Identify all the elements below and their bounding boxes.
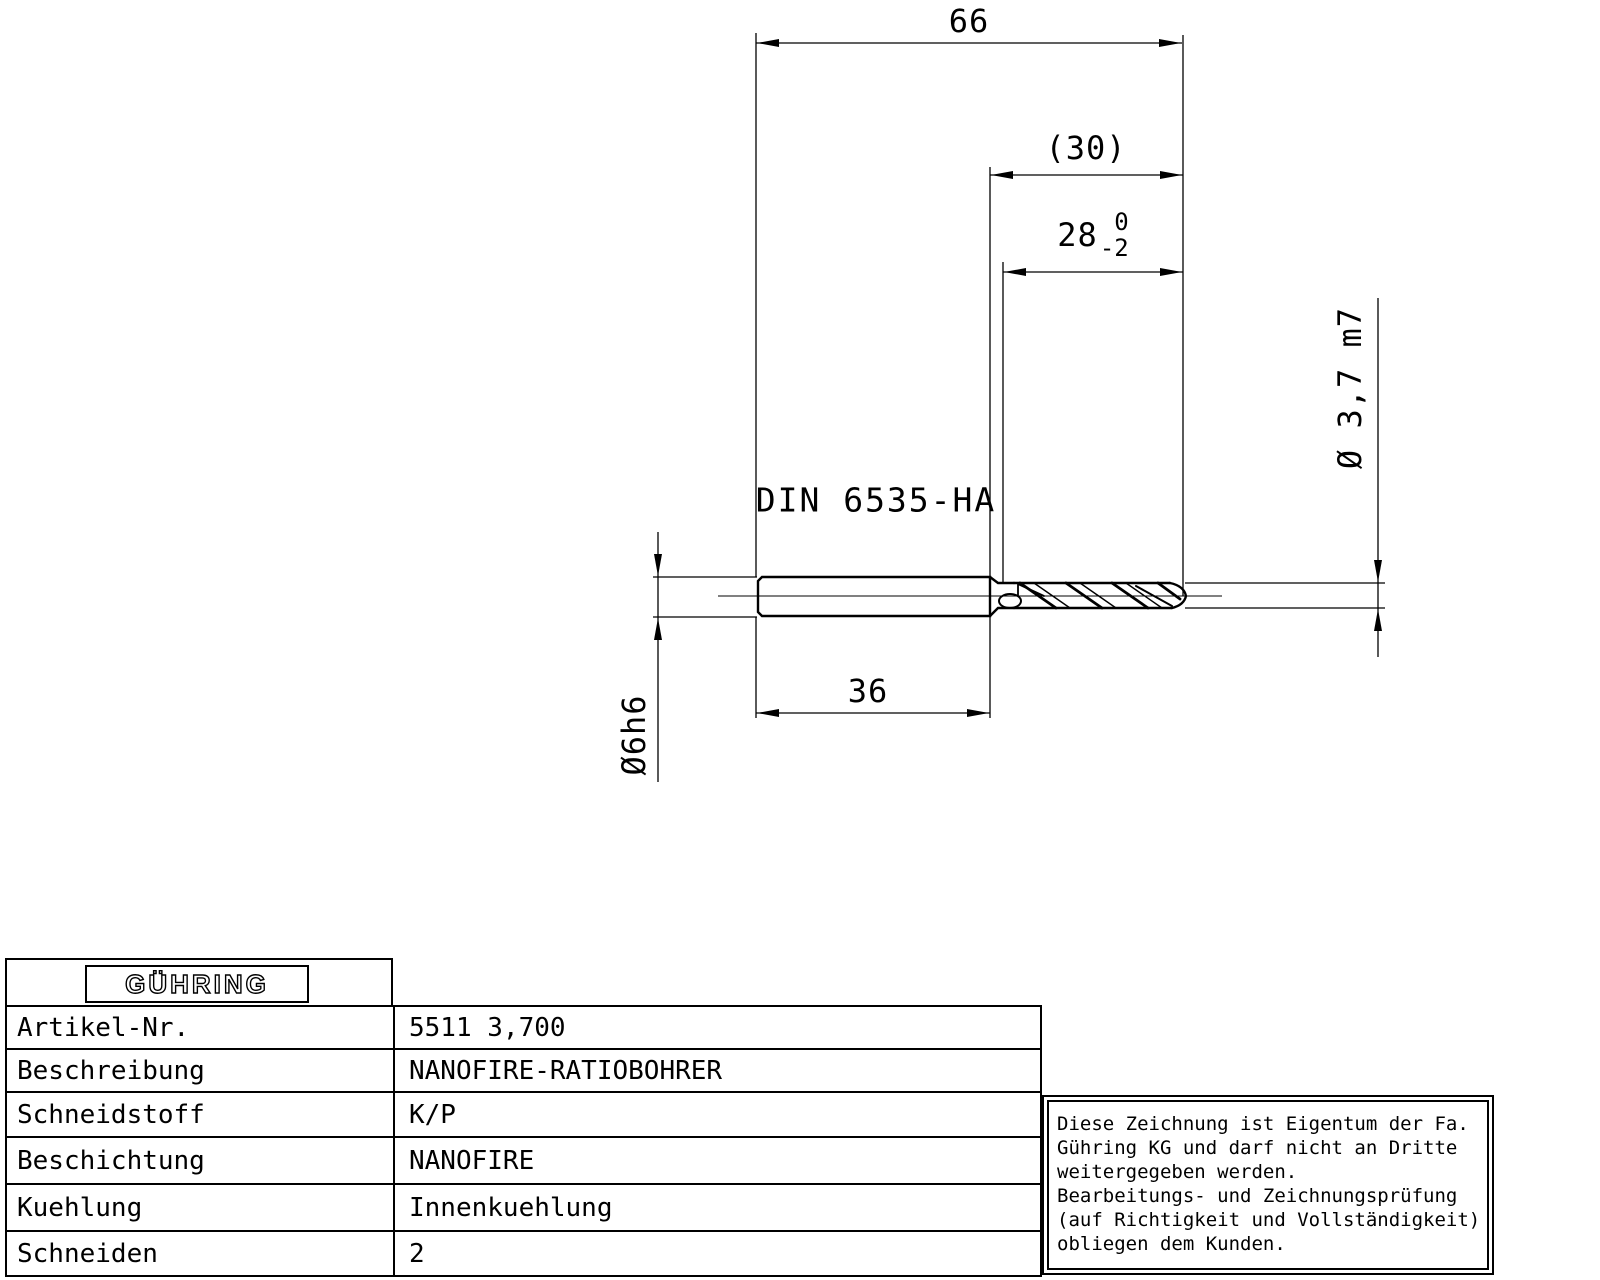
row-value: K/P [395,1093,1040,1136]
notice-line: Bearbeitungs- und Zeichnungsprüfung [1057,1184,1481,1208]
table-row: Beschreibung NANOFIRE-RATIOBOHRER [5,1048,1042,1093]
dimension-lines [658,43,1378,782]
table-row: Artikel-Nr. 5511 3,700 [5,1005,1042,1050]
property-notice-inner-border: Diese Zeichnung ist Eigentum der Fa. Güh… [1047,1100,1489,1270]
arrow-usable-right [1160,268,1182,276]
dim-text-usable-length: 28 0 -2 [1057,209,1128,261]
guehring-logo: GÜHRING [85,965,309,1003]
notice-line: weitergegeben werden. [1057,1160,1481,1184]
arrow-drill-dia-up [1374,609,1382,631]
row-label: Artikel-Nr. [7,1007,395,1048]
dim-text-shank-length: 36 [848,672,889,710]
row-value: 2 [395,1232,1040,1275]
dim-text-overall-length: 66 [949,2,990,40]
row-value: NANOFIRE-RATIOBOHRER [395,1050,1040,1091]
table-row: Schneiden 2 [5,1230,1042,1277]
table-row: Schneidstoff K/P [5,1091,1042,1138]
guehring-logo-text-svg: GÜHRING [89,968,305,1000]
shank-standard-label: DIN 6535-HA [756,481,997,520]
arrow-shank-dia-down [654,554,662,576]
arrow-shank-dia-up [654,618,662,640]
notice-line: Diese Zeichnung ist Eigentum der Fa. [1057,1112,1481,1136]
row-value: 5511 3,700 [395,1007,1040,1048]
tolerance-lower: -2 [1100,235,1129,261]
arrow-shank-len-right [967,709,989,717]
property-notice-box: Diese Zeichnung ist Eigentum der Fa. Güh… [1042,1095,1494,1275]
drill-drawing [0,0,1600,940]
tolerance-stack: 0 -2 [1100,209,1129,261]
row-label: Schneiden [7,1232,395,1275]
tolerance-upper: 0 [1114,209,1128,235]
row-label: Kuehlung [7,1185,395,1230]
row-value: NANOFIRE [395,1138,1040,1183]
row-label: Beschichtung [7,1138,395,1183]
row-value: Innenkuehlung [395,1185,1040,1230]
row-label: Beschreibung [7,1050,395,1091]
dim-usable-nominal: 28 [1057,216,1098,254]
dim-text-flute-length-ref: (30) [1045,129,1126,167]
arrow-overall-right [1159,39,1181,47]
dim-text-shank-diameter: Ø6h6 [615,694,653,775]
arrow-shank-len-left [757,709,779,717]
arrow-flute-ref-left [991,171,1013,179]
table-row: Beschichtung NANOFIRE [5,1136,1042,1185]
dim-text-drill-diameter: Ø 3,7 m7 [1331,307,1369,469]
guehring-logo-text: GÜHRING [125,969,269,999]
notice-line: obliegen dem Kunden. [1057,1232,1481,1256]
notice-line: Gühring KG und darf nicht an Dritte [1057,1136,1481,1160]
notice-line: (auf Richtigkeit und Vollständigkeit) [1057,1208,1481,1232]
arrow-drill-dia-down [1374,560,1382,582]
titleblock-logo-cell: GÜHRING [5,958,393,1007]
table-row: Kuehlung Innenkuehlung [5,1183,1042,1232]
arrow-overall-left [757,39,779,47]
arrow-flute-ref-right [1160,171,1182,179]
drawing-sheet: 66 (30) 28 0 -2 DIN 6535-HA 36 Ø6h6 Ø 3,… [0,0,1600,1280]
arrow-usable-left [1004,268,1026,276]
row-label: Schneidstoff [7,1093,395,1136]
